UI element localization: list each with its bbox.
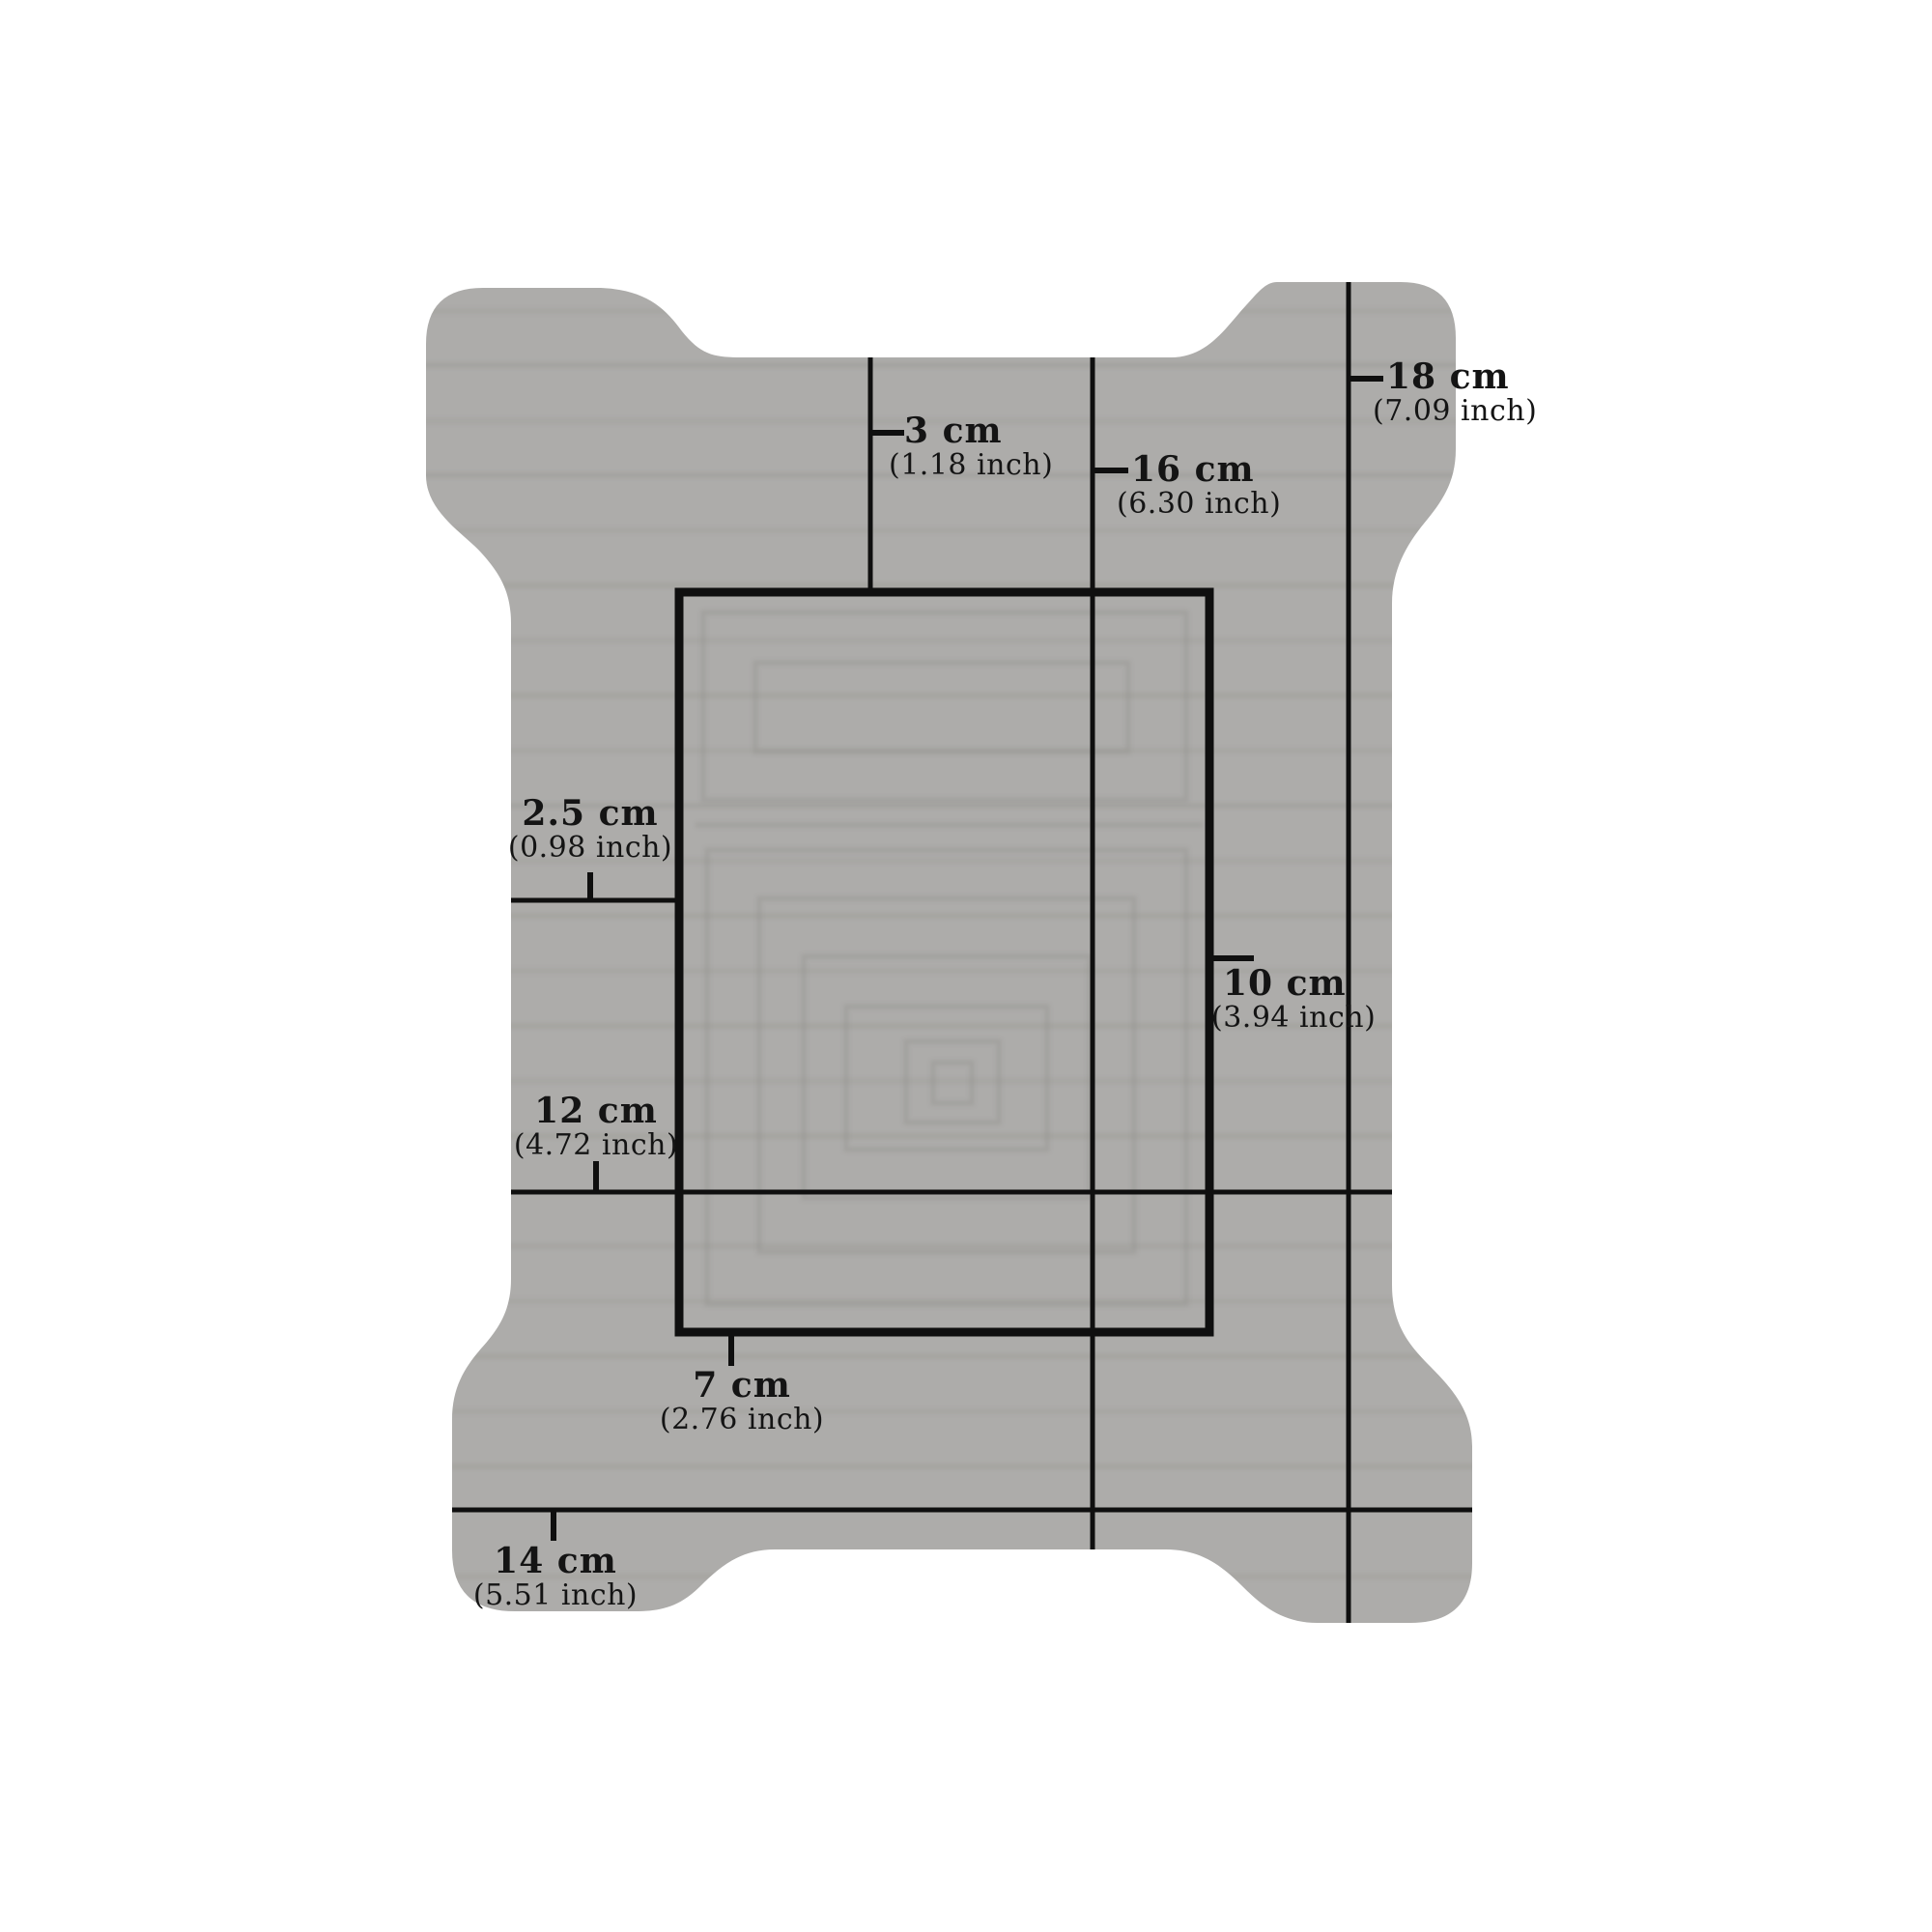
dimension-inch: (4.72 inch) [514,1129,678,1162]
dimension-inch: (0.98 inch) [508,832,672,865]
dimension-label-7cm: 7 cm (2.76 inch) [660,1368,824,1435]
dimension-inch: (2.76 inch) [660,1404,824,1436]
dimension-value: 12 cm [514,1094,678,1129]
dimension-label-10cm: 10 cm (3.94 inch) [1211,966,1376,1034]
dimension-value: 3 cm [889,413,1053,449]
measurement-diagram: 3 cm (1.18 inch) 16 cm (6.30 inch) 18 cm… [0,0,1932,1932]
dimension-value: 18 cm [1373,359,1537,395]
dimension-inch: (5.51 inch) [473,1579,638,1612]
dimension-label-2-5cm: 2.5 cm (0.98 inch) [508,796,672,864]
diagram-canvas [0,0,1932,1932]
dimension-label-3cm: 3 cm (1.18 inch) [889,413,1053,481]
dimension-value: 2.5 cm [508,796,672,832]
dimension-value: 16 cm [1117,452,1281,488]
dimension-value: 10 cm [1211,966,1376,1002]
dimension-label-18cm: 18 cm (7.09 inch) [1373,359,1537,427]
dimension-inch: (7.09 inch) [1373,395,1537,428]
cardboard-blank-shape [426,282,1472,1623]
dimension-value: 7 cm [660,1368,824,1404]
dimension-label-14cm: 14 cm (5.51 inch) [473,1544,638,1611]
dimension-inch: (3.94 inch) [1211,1002,1376,1035]
dimension-label-12cm: 12 cm (4.72 inch) [514,1094,678,1161]
dimension-inch: (6.30 inch) [1117,488,1281,521]
dimension-label-16cm: 16 cm (6.30 inch) [1117,452,1281,520]
dimension-inch: (1.18 inch) [889,449,1053,482]
dimension-value: 14 cm [473,1544,638,1579]
